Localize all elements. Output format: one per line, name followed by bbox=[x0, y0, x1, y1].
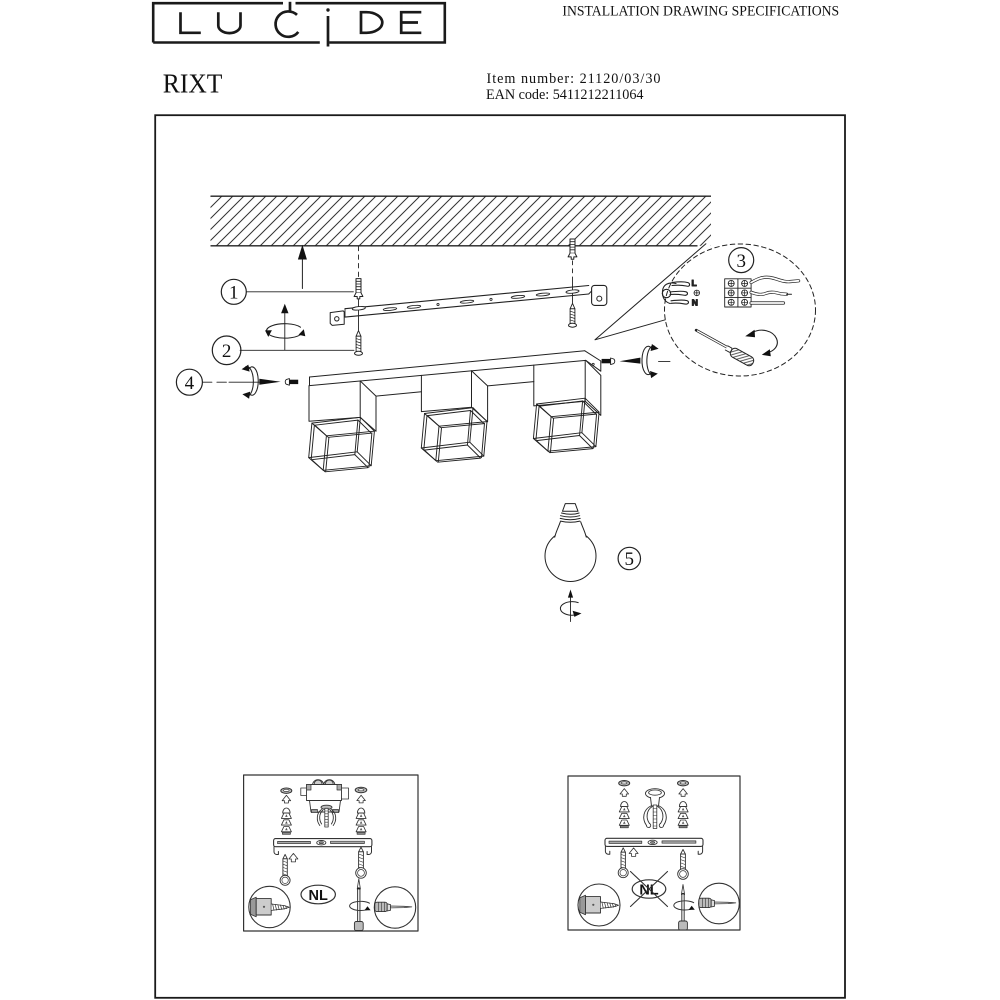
svg-text:2: 2 bbox=[222, 341, 232, 362]
svg-text:INSTALLATION DRAWING SPECIFICA: INSTALLATION DRAWING SPECIFICATIONS bbox=[562, 4, 839, 20]
svg-text:L: L bbox=[692, 278, 697, 288]
svg-text:3: 3 bbox=[736, 251, 746, 272]
svg-text:5: 5 bbox=[625, 549, 635, 570]
svg-text:4: 4 bbox=[185, 373, 195, 394]
svg-text:N: N bbox=[692, 298, 698, 308]
svg-text:1: 1 bbox=[229, 282, 239, 303]
svg-text:RIXT: RIXT bbox=[163, 67, 223, 98]
svg-text:NL: NL bbox=[309, 888, 328, 904]
svg-text:Item number: 21120/03/30: Item number: 21120/03/30 bbox=[487, 71, 661, 87]
svg-text:EAN code: 5411212211064: EAN code: 5411212211064 bbox=[486, 87, 644, 103]
